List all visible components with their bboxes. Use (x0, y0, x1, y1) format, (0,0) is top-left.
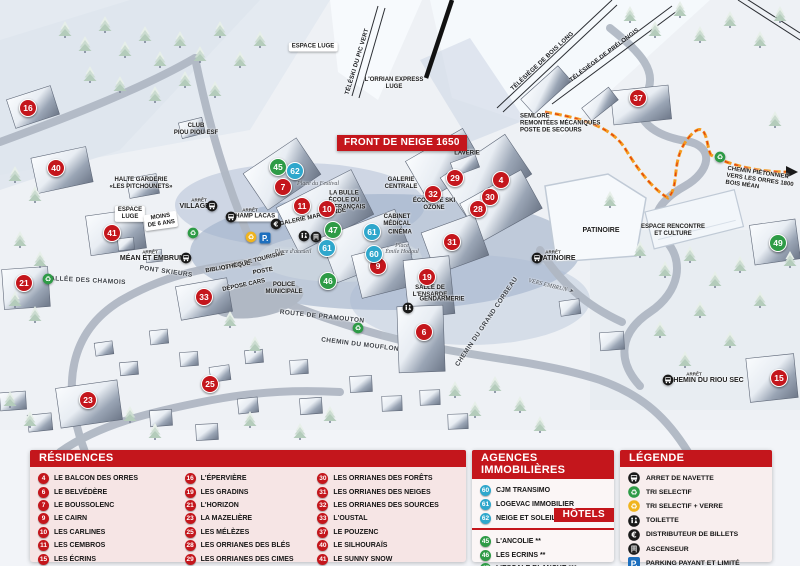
map-label: PONT SKIEURS (139, 264, 193, 279)
legend-item-23: 23LA MAZELIÈRE (185, 512, 318, 525)
legend-label: LE BALCON DES ORRES (54, 475, 138, 482)
map-marker-19[interactable]: 19 (418, 268, 436, 286)
residences-columns: 4LE BALCON DES ORRES6LE BELVÉDÈRE7LE BOU… (30, 467, 466, 566)
bus-icon (226, 212, 237, 223)
legend-item-40: 40LE SILHOURAÏS (317, 539, 464, 552)
legend-marker-15: 15 (38, 554, 49, 565)
legend-marker-28: 28 (185, 540, 196, 551)
map-marker-61[interactable]: 61 (318, 239, 336, 257)
legende-label: ARRET DE NAVETTE (646, 475, 714, 482)
legend-item-60: 60CJM TRANSIMO (480, 483, 614, 497)
legend-item-15: 15LES ÉCRINS (38, 552, 185, 565)
legend-marker-30: 30 (317, 473, 328, 484)
legend-item-46: 46LES ECRINS ** (480, 548, 614, 561)
bus-icon (663, 375, 674, 386)
legend-item-10: 10LES CARLINES (38, 526, 185, 539)
bus-icon (628, 472, 640, 484)
legend-label: LES CEMBROS (54, 542, 105, 549)
legend-marker-33: 33 (317, 513, 328, 524)
map-label: VERS EMBRUN ➤ (528, 277, 575, 295)
map-marker-7[interactable]: 7 (274, 178, 292, 196)
legende-label: PARKING PAYANT ET LIMITÉ (646, 560, 740, 566)
map-label: PATINOIRE (582, 227, 619, 235)
parking-icon: P. (260, 233, 271, 244)
legende-list: ARRET DE NAVETTE♻TRI SELECTIF♻TRI SELECT… (620, 467, 772, 566)
legende-label: DISTRIBUTEUR DE BILLETS (646, 531, 738, 538)
legend-marker-62: 62 (480, 513, 491, 524)
map-label: MÉAN ET EMBRUN (120, 255, 184, 263)
legende-item: €DISTRIBUTEUR DE BILLETS (628, 528, 772, 542)
map-label: CHEMIN PIÉTONNIER VERS LES ORRES 1800 BO… (725, 166, 795, 196)
map-label: ARRÊT (142, 249, 158, 254)
map-marker-23[interactable]: 23 (79, 391, 97, 409)
legend-marker-11: 11 (38, 540, 49, 551)
legend-marker-31: 31 (317, 487, 328, 498)
recycle-green-icon: ♻ (353, 323, 364, 334)
legend-marker-32: 32 (317, 500, 328, 511)
legend-marker-40: 40 (317, 540, 328, 551)
legend-item-33: 33L'OUSTAL (317, 512, 464, 525)
map-label: CLUB PIOU PIOU ESF (174, 123, 218, 137)
legend-item-4: 4LE BALCON DES ORRES (38, 472, 185, 485)
agencies-header: AGENCES IMMOBILIÈRES (472, 450, 614, 479)
legend-marker-29: 29 (185, 554, 196, 565)
map-label: TÉLÉSIÈGE DE BOIS LONG (510, 31, 576, 93)
legend-label: LE POUZENC (333, 529, 378, 536)
map-marker-31[interactable]: 31 (443, 233, 461, 251)
legend-marker-61: 61 (480, 499, 491, 510)
map-label: CINÉMA (388, 229, 412, 236)
front-de-neige-banner: FRONT DE NEIGE 1650 (337, 135, 467, 151)
legend-marker-10: 10 (38, 527, 49, 538)
legend-item-11: 11LES CEMBROS (38, 539, 185, 552)
ascenseur-icon (628, 543, 640, 555)
bus-icon (207, 201, 218, 212)
legende-item: P.PARKING PAYANT ET LIMITÉ (628, 556, 772, 566)
map-label: L'ORRIAN EXPRESS LUGE (365, 77, 424, 91)
legend-label: LE BOUSSOLENC (54, 502, 114, 509)
residences-header: RÉSIDENCES (30, 450, 466, 467)
legend-marker-46: 46 (480, 550, 491, 561)
legend-item-9: 9LE CAIRN (38, 512, 185, 525)
map-label: Place du Festival (297, 181, 339, 187)
svg-text:♻: ♻ (45, 275, 52, 284)
legend-label: L'OUSTAL (333, 515, 367, 522)
legend-item-16: 16L'ÉPERVIÈRE (185, 472, 318, 485)
legend-item-25: 25LES MÉLÈZES (185, 526, 318, 539)
legend-item-37: 37LE POUZENC (317, 526, 464, 539)
svg-text:♻: ♻ (630, 488, 637, 497)
bus-icon (181, 253, 192, 264)
map-label: ESPACE RENCONTRE ET CULTURE (641, 224, 705, 238)
legend-marker-23: 23 (185, 513, 196, 524)
map-label: MOINS DE 6 ANS (143, 211, 178, 232)
map-marker-47[interactable]: 47 (324, 221, 342, 239)
legend-marker-45: 45 (480, 536, 491, 547)
map-marker-16[interactable]: 16 (19, 99, 37, 117)
map-label: CHEMIN DU RIOU SEC (668, 377, 743, 385)
legend-label: LES ECRINS ** (496, 552, 545, 559)
legend-marker-16: 16 (185, 473, 196, 484)
map-label: DÉPOSE CARS (222, 278, 266, 294)
legend-label: L'HORIZON (201, 502, 239, 509)
map-label: ESPACE LUGE (289, 42, 338, 51)
legend-marker-9: 9 (38, 513, 49, 524)
legend-label: LES ORRIANES DES CIMES (201, 556, 294, 563)
legend-marker-25: 25 (185, 527, 196, 538)
legende-label: ASCENSEUR (646, 546, 689, 553)
ski-resort-map: 1640412133232571110919629324302831371545… (0, 0, 800, 566)
legende-label: TRI SELECTIF (646, 489, 692, 496)
map-marker-28[interactable]: 28 (469, 200, 487, 218)
legende-item: ARRET DE NAVETTE (628, 471, 772, 485)
legend-label: LES ORRIANES DES NEIGES (333, 489, 430, 496)
map-marker-15[interactable]: 15 (770, 369, 788, 387)
legend-label: LA MAZELIÈRE (201, 515, 252, 522)
legend-label: LES GRADINS (201, 489, 249, 496)
legend-marker-6: 6 (38, 487, 49, 498)
legend-label: LE SILHOURAÏS (333, 542, 387, 549)
map-marker-37[interactable]: 37 (629, 89, 647, 107)
agencies-hotels-panel: AGENCES IMMOBILIÈRES 60CJM TRANSIMO61LOG… (472, 450, 614, 562)
legend-item-30: 30LES ORRIANES DES FORÊTS (317, 472, 464, 485)
parking-icon: P. (628, 557, 640, 566)
residences-panel: RÉSIDENCES 4LE BALCON DES ORRES6LE BELVÉ… (30, 450, 466, 562)
legend-item-45: 45L'ANCOLIE ** (480, 535, 614, 548)
legend-label: L'ÉPERVIÈRE (201, 475, 247, 482)
map-label: ARRÊT (545, 249, 561, 254)
map-marker-11[interactable]: 11 (293, 197, 311, 215)
map-marker-21[interactable]: 21 (15, 274, 33, 292)
svg-text:♻: ♻ (248, 233, 255, 242)
legende-item: ASCENSEUR (628, 542, 772, 556)
map-label: ALLÉE DES CHAMOIS (50, 275, 126, 287)
map-label: Place Émile Hodoul (385, 243, 419, 255)
recycle-yellow-icon: ♻ (246, 232, 257, 243)
map-label: ARRÊT (191, 197, 207, 202)
map-marker-32[interactable]: 32 (424, 185, 442, 203)
map-marker-46[interactable]: 46 (319, 272, 337, 290)
toilette-icon (628, 515, 640, 527)
legend-label: LE SUNNY SNOW (333, 556, 392, 563)
map-label: Place d'accueil (275, 249, 312, 255)
map-marker-40[interactable]: 40 (47, 159, 65, 177)
recycle-green-icon: ♻ (715, 152, 726, 163)
map-label: BIBLIOTHÈQUE (205, 261, 251, 276)
toilette-icon (403, 303, 414, 314)
map-marker-41[interactable]: 41 (103, 224, 121, 242)
legende-label: TRI SELECTIF + VERRE (646, 503, 723, 510)
legend-label: LOGEVAC IMMOBILIER (496, 501, 574, 508)
legend-label: LE CAIRN (54, 515, 87, 522)
svg-text:€: € (630, 531, 636, 540)
map-marker-4[interactable]: 4 (492, 171, 510, 189)
map-label: ESPACE LUGE (115, 206, 145, 222)
map-label: POSTE (252, 267, 273, 278)
legend-item-6: 6LE BELVÉDÈRE (38, 485, 185, 498)
map-label: SEMLORE REMONTÉES MÉCANIQUES POSTE DE SE… (520, 113, 600, 134)
map-marker-10[interactable]: 10 (318, 200, 336, 218)
legend-item-19: 19LES GRADINS (185, 485, 318, 498)
legend-marker-4: 4 (38, 473, 49, 484)
bus-icon (532, 253, 543, 264)
map-label: GALERIE CENTRALE (385, 177, 418, 191)
map-marker-29[interactable]: 29 (446, 169, 464, 187)
legend-label: CJM TRANSIMO (496, 487, 550, 494)
legende-item: TOILETTE (628, 514, 772, 528)
recycle-yellow-icon: ♻ (628, 500, 640, 512)
euro-icon: € (628, 529, 640, 541)
legend-marker-7: 7 (38, 500, 49, 511)
map-label: CABINET MÉDICAL (383, 214, 410, 228)
map-label: LAVERIE (454, 150, 480, 157)
hotels-list: 45L'ANCOLIE **46LES ECRINS **47L'ESCALE … (472, 530, 614, 566)
legende-panel: LÉGENDE ARRET DE NAVETTE♻TRI SELECTIF♻TR… (620, 450, 772, 562)
map-marker-60[interactable]: 60 (365, 245, 383, 263)
map-label: POLICE MUNICIPALE (266, 282, 303, 296)
legend-item-7: 7LE BOUSSOLENC (38, 499, 185, 512)
legend-marker-37: 37 (317, 527, 328, 538)
map-label: CHEMIN DU GRAND CORBEAU (454, 276, 520, 368)
map-marker-49[interactable]: 49 (769, 234, 787, 252)
legend-item-29: 29LES ORRIANES DES CIMES (185, 552, 318, 565)
toilette-icon (299, 231, 310, 242)
map-marker-6[interactable]: 6 (415, 323, 433, 341)
legend-marker-21: 21 (185, 500, 196, 511)
legend-item-32: 32LES ORRIANES DES SOURCES (317, 499, 464, 512)
map-label: HALTE GARDERIE «LES PITCHOUNETS» (109, 177, 172, 191)
legend-label: LES ORRIANES DES SOURCES (333, 502, 438, 509)
legende-header: LÉGENDE (620, 450, 772, 467)
map-label: CHEMIN DU MOUFLON (321, 336, 400, 353)
legende-item: ♻TRI SELECTIF + VERRE (628, 499, 772, 513)
svg-text:♻: ♻ (717, 153, 724, 162)
legend-item-31: 31LES ORRIANES DES NEIGES (317, 485, 464, 498)
svg-text:♻: ♻ (190, 229, 197, 238)
hotels-header: HÔTELS (554, 508, 614, 522)
legend-marker-60: 60 (480, 485, 491, 496)
map-label: PATINOIRE (538, 255, 575, 263)
recycle-green-icon: ♻ (43, 274, 54, 285)
legend-item-21: 21L'HORIZON (185, 499, 318, 512)
legend-label: LES ORRIANES DES FORÊTS (333, 475, 432, 482)
svg-text:€: € (273, 220, 279, 228)
svg-text:♻: ♻ (355, 324, 362, 333)
svg-text:♻: ♻ (630, 502, 637, 511)
legend-label: LES CARLINES (54, 529, 105, 536)
map-label: TÉLÉSIÈGE DE PRÉLONGIS (569, 28, 641, 85)
map-marker-45[interactable]: 45 (269, 158, 287, 176)
legend-marker-41: 41 (317, 554, 328, 565)
recycle-green-icon: ♻ (628, 486, 640, 498)
legende-item: ♻TRI SELECTIF (628, 485, 772, 499)
svg-text:P.: P. (631, 559, 638, 566)
euro-icon: € (271, 219, 282, 230)
legend-item-28: 28LES ORRIANES DES BLÉS (185, 539, 318, 552)
legend-label: LES ORRIANES DES BLÉS (201, 542, 290, 549)
svg-text:P.: P. (262, 234, 268, 243)
legend-item-41: 41LE SUNNY SNOW (317, 552, 464, 565)
legend-label: LES ÉCRINS (54, 556, 96, 563)
legende-label: TOILETTE (646, 517, 679, 524)
legend-label: LES MÉLÈZES (201, 529, 250, 536)
legend-label: NEIGE ET SOLEIL (496, 515, 556, 522)
map-marker-33[interactable]: 33 (195, 288, 213, 306)
recycle-green-icon: ♻ (188, 228, 199, 239)
legend-item-47: 47L'ESCALE BLANCHE *** (480, 562, 614, 566)
map-marker-61[interactable]: 61 (363, 223, 381, 241)
legend-label: L'ANCOLIE ** (496, 538, 541, 545)
map-label: ARRÊT (686, 371, 702, 376)
legend-label: LE BELVÉDÈRE (54, 489, 107, 496)
map-marker-62[interactable]: 62 (286, 162, 304, 180)
map-label: GENDARMERIE (419, 296, 464, 303)
map-marker-25[interactable]: 25 (201, 375, 219, 393)
legend-marker-19: 19 (185, 487, 196, 498)
